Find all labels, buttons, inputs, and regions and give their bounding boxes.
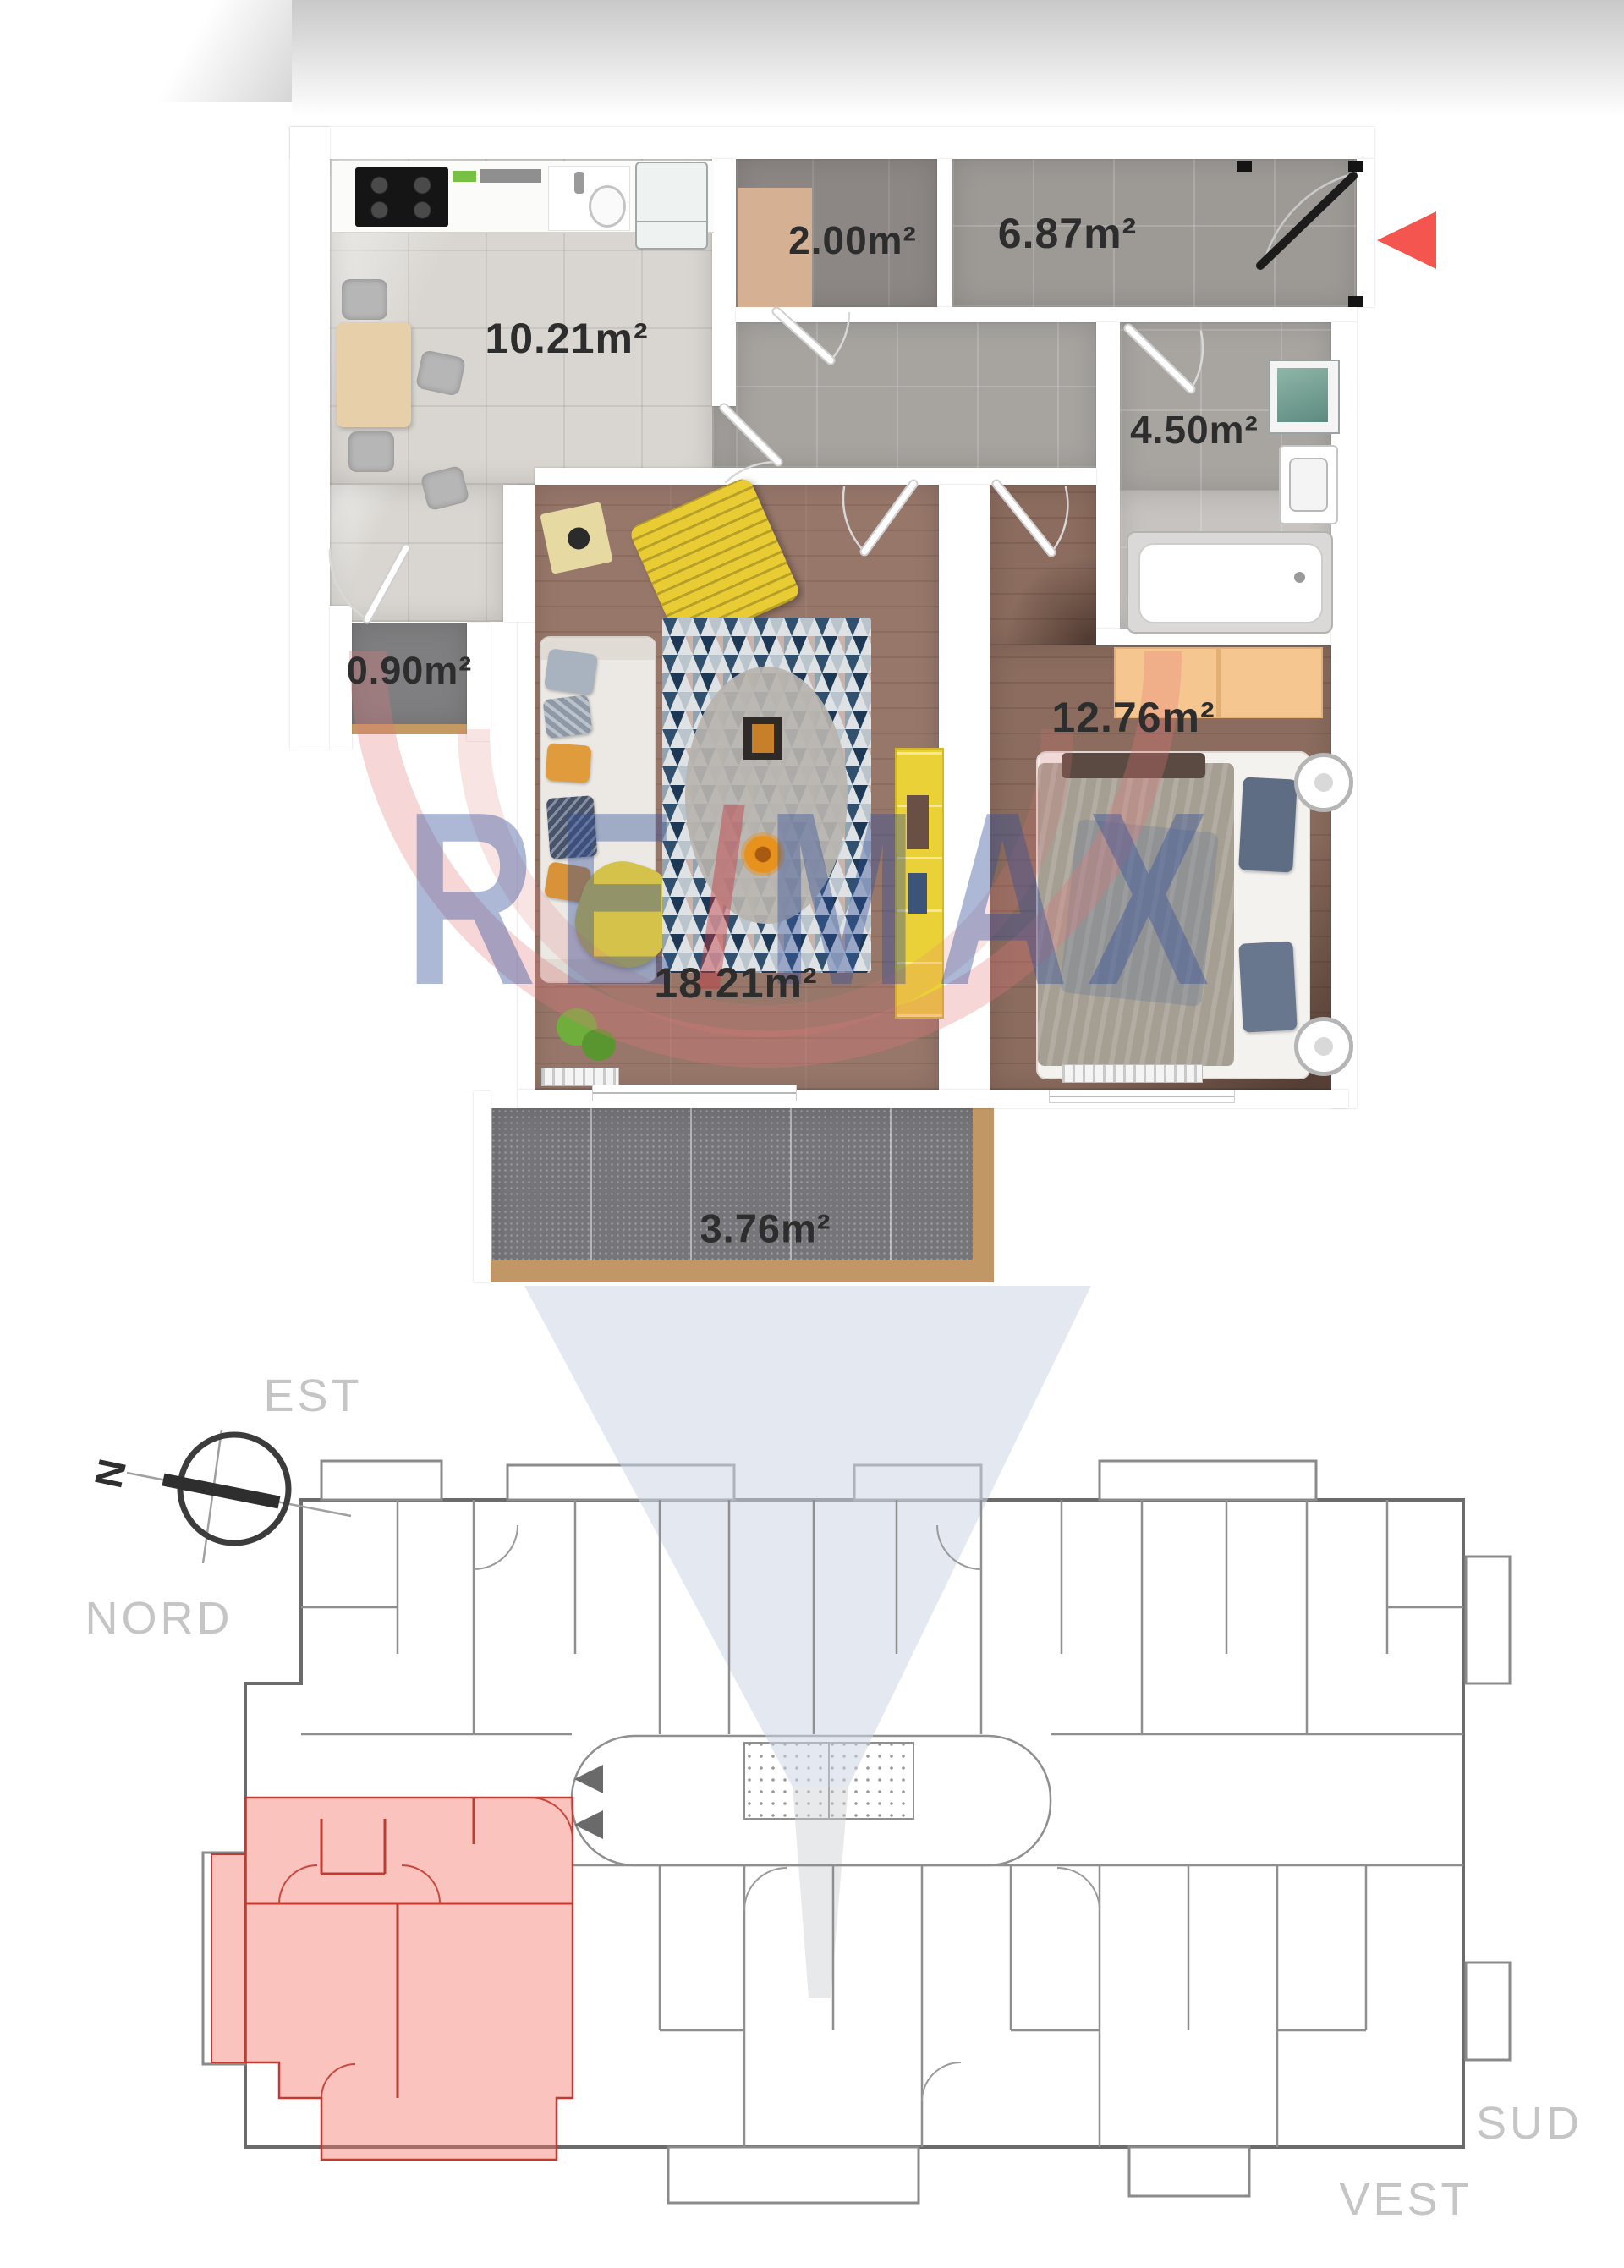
- unit-door-arcs: [279, 1798, 573, 2098]
- fridge: [635, 162, 708, 250]
- bathtub: [1127, 531, 1333, 634]
- pillow: [542, 695, 592, 739]
- room-hallway-mid-floor: [736, 322, 1096, 468]
- faucet-icon: [574, 172, 584, 194]
- watermark-max: MAX: [765, 761, 1228, 1036]
- wall: [535, 468, 1096, 485]
- radiator: [541, 1068, 619, 1086]
- bathtub-inner: [1138, 543, 1323, 623]
- watermark-re: RE: [404, 761, 696, 1036]
- entry-door-jamb: [1348, 161, 1363, 172]
- wall: [736, 307, 1357, 322]
- wall: [290, 127, 1374, 159]
- balcony-wood-trim-right: [973, 1108, 994, 1282]
- tub-drain-icon: [1294, 572, 1305, 583]
- bathroom-window: [1269, 360, 1340, 434]
- nightstand: [1294, 753, 1353, 812]
- window-view: [1277, 368, 1328, 422]
- direction-label-vest: VEST: [1339, 2173, 1472, 2226]
- direction-label-sud: SUD: [1476, 2097, 1583, 2150]
- watermark-text: RE/MAX: [404, 775, 1228, 1022]
- building-outline: [245, 1500, 1463, 2147]
- direction-label-nord: NORD: [85, 1592, 233, 1645]
- kitchen-sink: [548, 166, 630, 231]
- wall: [503, 485, 535, 622]
- room-bedroom-door-strip-floor: [990, 485, 1096, 645]
- room-kitchen-dining-nook-floor: [330, 485, 503, 622]
- top-gradient-shade: [292, 0, 1624, 117]
- unit-inner-walls: [245, 1798, 573, 2098]
- entry-door-jamb: [1348, 296, 1363, 307]
- sink-basin: [589, 185, 626, 228]
- unit-highlight-left-balcony: [211, 1854, 245, 2062]
- building-balcony-tabs: [203, 1461, 1510, 2203]
- wall: [330, 606, 352, 750]
- room-balcony-floor: [491, 1108, 994, 1282]
- balcony-wood-trim-bottom: [491, 1260, 994, 1282]
- cutting-board-gray: [480, 169, 541, 183]
- dresser: [1114, 647, 1323, 718]
- room-hallway-entry-floor: [952, 159, 1357, 307]
- wall: [712, 159, 736, 406]
- site-plan: N: [85, 1286, 1510, 2203]
- candle-icon: [752, 724, 774, 753]
- dining-table: [337, 322, 411, 427]
- chair: [342, 279, 387, 320]
- wall: [290, 127, 330, 750]
- entrance-arrow-icon: [1377, 211, 1436, 269]
- direction-label-est: EST: [263, 1370, 362, 1422]
- watermark-balloon-wedge: [524, 1286, 1091, 1787]
- chair: [348, 431, 394, 472]
- building-inner-walls: [301, 1500, 1463, 2147]
- wardrobe-cabinet: [738, 188, 812, 307]
- cutting-board-green: [453, 171, 476, 182]
- building-door-arcs: [474, 1525, 1100, 2101]
- apartment-3d-plan: [290, 127, 1374, 1288]
- wall: [1331, 322, 1357, 1108]
- side-table: [540, 502, 612, 574]
- wall: [1096, 322, 1120, 629]
- hallway-door-opening-floor: [712, 406, 736, 468]
- stove-icon: [355, 167, 448, 227]
- stairwell: [744, 1743, 913, 1819]
- compass: N: [85, 1430, 351, 1563]
- corridor: [572, 1736, 1051, 1865]
- corridor-arrow-icon: [574, 1810, 603, 1839]
- bathroom-sink: [1279, 445, 1338, 524]
- pillow: [544, 648, 598, 695]
- sink-basin: [1289, 458, 1328, 512]
- wall: [474, 1091, 491, 1282]
- wall: [1357, 159, 1374, 307]
- watermark-slash: /: [696, 761, 765, 1036]
- room-storage-balcony-floor: [352, 623, 467, 724]
- compass-north-letter: N: [85, 1455, 134, 1491]
- storage-balcony-wood-edge: [352, 724, 477, 734]
- wall: [937, 159, 952, 307]
- unit-highlight: [245, 1798, 573, 2160]
- fireplace-tray: [743, 717, 782, 760]
- watermark-balloon-wedge-tip: [793, 1787, 848, 1998]
- pillow: [1238, 941, 1297, 1032]
- corridor-arrow-icon: [574, 1765, 603, 1793]
- pillow: [1238, 777, 1298, 872]
- sliding-door: [592, 1085, 797, 1101]
- floorplan-page: { "floorplan": { "rooms": { "kitchen": "…: [0, 0, 1624, 2268]
- nightstand: [1294, 1017, 1353, 1076]
- headphones-icon: [566, 525, 592, 552]
- entry-door-jamb: [1237, 161, 1252, 172]
- wall: [467, 623, 491, 741]
- radiator: [1062, 1064, 1203, 1083]
- window: [1049, 1090, 1235, 1103]
- top-gradient-shade-left: [156, 0, 292, 102]
